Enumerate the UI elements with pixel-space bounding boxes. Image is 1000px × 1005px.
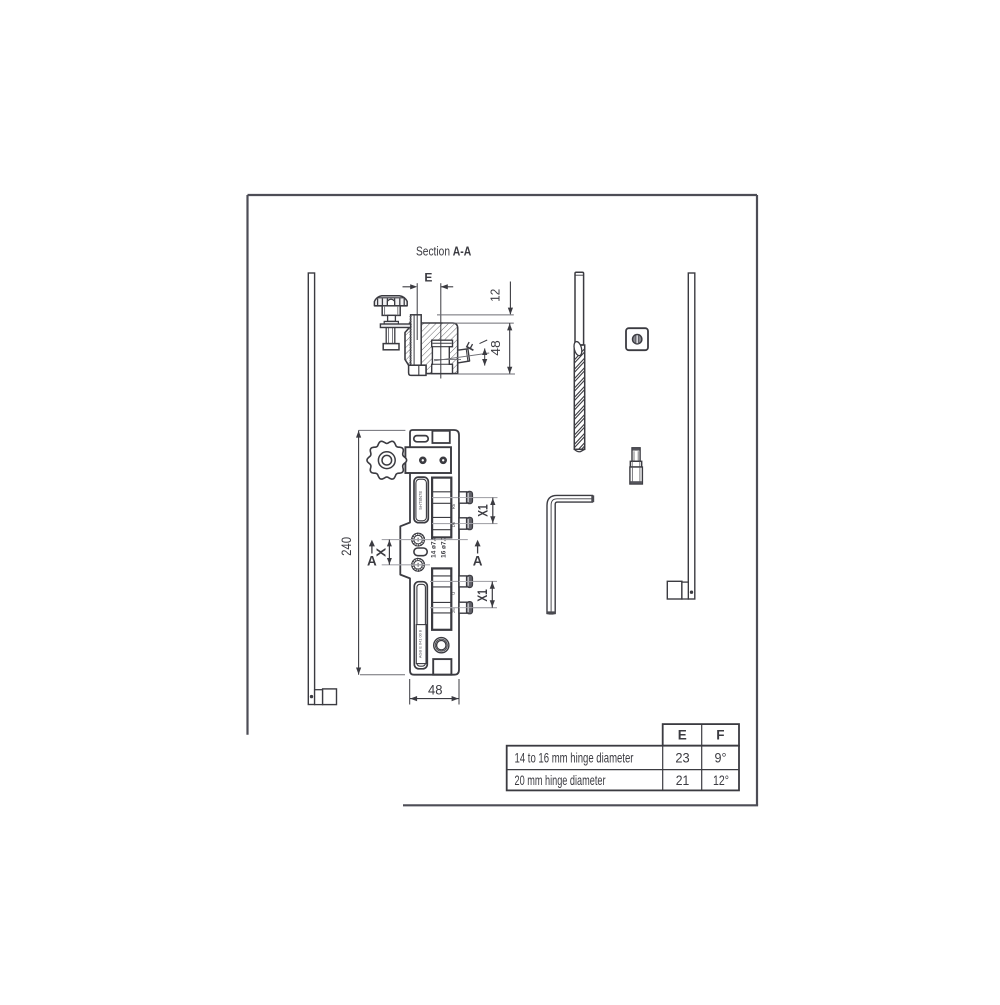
svg-text:A: A bbox=[473, 554, 483, 569]
svg-text:U: U bbox=[451, 592, 456, 595]
svg-text:E: E bbox=[678, 727, 687, 742]
svg-text:X1: X1 bbox=[476, 504, 491, 517]
svg-text:14 ø7.5: 14 ø7.5 bbox=[431, 536, 438, 558]
svg-text:9°: 9° bbox=[715, 749, 727, 765]
svg-text:48: 48 bbox=[428, 681, 443, 697]
svg-text:12: 12 bbox=[487, 289, 502, 302]
svg-text:F: F bbox=[716, 727, 724, 742]
svg-text:23: 23 bbox=[675, 749, 689, 765]
svg-text:240: 240 bbox=[339, 537, 354, 556]
svg-text:48: 48 bbox=[488, 340, 503, 356]
svg-text:5HT8N7E: 5HT8N7E bbox=[418, 491, 423, 510]
svg-text:X1: X1 bbox=[475, 589, 490, 602]
svg-text:D6: D6 bbox=[451, 521, 456, 527]
svg-text:R5: R5 bbox=[451, 503, 456, 509]
svg-text:E: E bbox=[424, 270, 432, 284]
svg-text:16 ø7.7: 16 ø7.7 bbox=[441, 536, 448, 558]
svg-text:A-A: A-A bbox=[453, 244, 472, 259]
svg-text:14 to 16 mm hinge diameter: 14 to 16 mm hinge diameter bbox=[515, 749, 634, 765]
svg-text:12°: 12° bbox=[713, 772, 729, 788]
svg-text:20 mm hinge diameter: 20 mm hinge diameter bbox=[515, 772, 606, 788]
svg-text:26: 26 bbox=[451, 608, 456, 613]
svg-text:X: X bbox=[373, 548, 388, 557]
svg-text:Section: Section bbox=[416, 244, 450, 259]
svg-text:21: 21 bbox=[676, 772, 690, 788]
svg-text:AGB E 041 00 8: AGB E 041 00 8 bbox=[418, 630, 423, 658]
